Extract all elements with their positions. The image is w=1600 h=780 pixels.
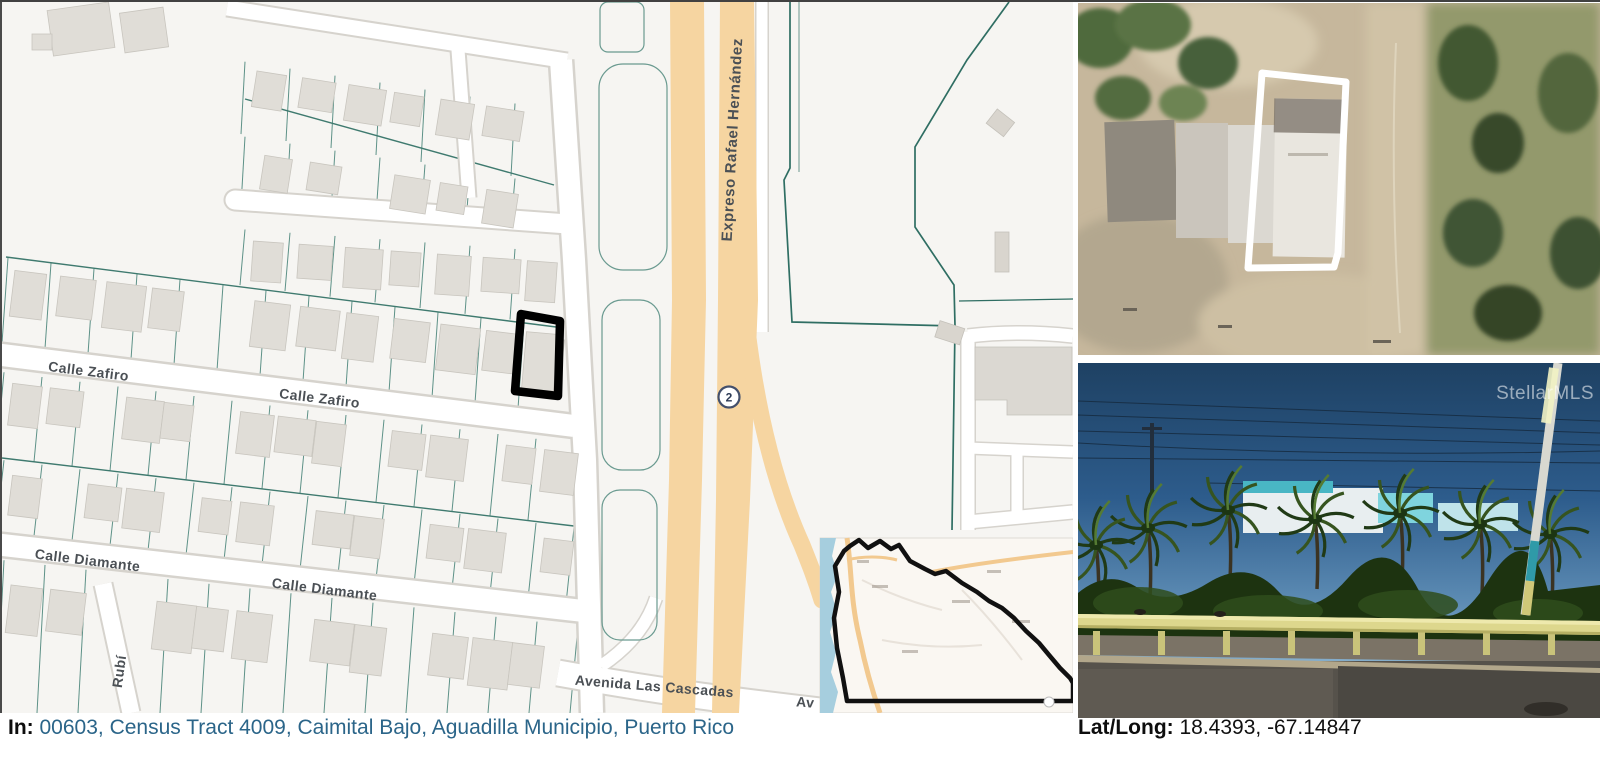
street-view-canvas [1078, 363, 1600, 718]
inset-attribution-icon [1044, 697, 1054, 707]
link-municipio[interactable]: Aguadilla Municipio [432, 716, 613, 739]
route-2-shield: 2 [719, 387, 740, 408]
inset-overview-map [820, 538, 1073, 713]
latlong-caption: Lat/Long: 18.4393, -67.14847 [1078, 716, 1362, 740]
location-caption: In: 00603, Census Tract 4009, Caimital B… [8, 716, 734, 740]
link-census-tract[interactable]: Census Tract 4009 [110, 716, 286, 739]
in-label: In: [8, 716, 34, 739]
road [1078, 655, 1600, 718]
latlong-value: 18.4393, -67.14847 [1179, 716, 1361, 739]
object-on-rail [1214, 611, 1226, 617]
street-view-photo[interactable]: StellarMLS [1078, 363, 1600, 718]
stellar-mls-watermark: StellarMLS [1496, 383, 1594, 405]
separator: , [421, 716, 432, 739]
separator: , [98, 716, 110, 739]
location-map[interactable]: Calle Zafiro Calle Zafiro Calle Diamante… [0, 0, 1073, 713]
object-on-rail [1134, 609, 1146, 615]
aerial-photo[interactable] [1078, 3, 1600, 355]
route-2-number: 2 [726, 391, 733, 405]
road-debris [1524, 702, 1568, 716]
separator: , [613, 716, 625, 739]
separator: , [286, 716, 298, 739]
link-territory[interactable]: Puerto Rico [624, 716, 734, 739]
window-top-edge [0, 0, 1600, 2]
link-zip-code[interactable]: 00603 [40, 716, 98, 739]
link-barrio[interactable]: Caimital Bajo [298, 716, 422, 739]
street-label-avenida-partial: Av [796, 693, 815, 710]
aerial-canvas [1078, 3, 1600, 355]
street-map-canvas: Calle Zafiro Calle Zafiro Calle Diamante… [2, 0, 1073, 713]
latlong-label: Lat/Long: [1078, 716, 1174, 739]
